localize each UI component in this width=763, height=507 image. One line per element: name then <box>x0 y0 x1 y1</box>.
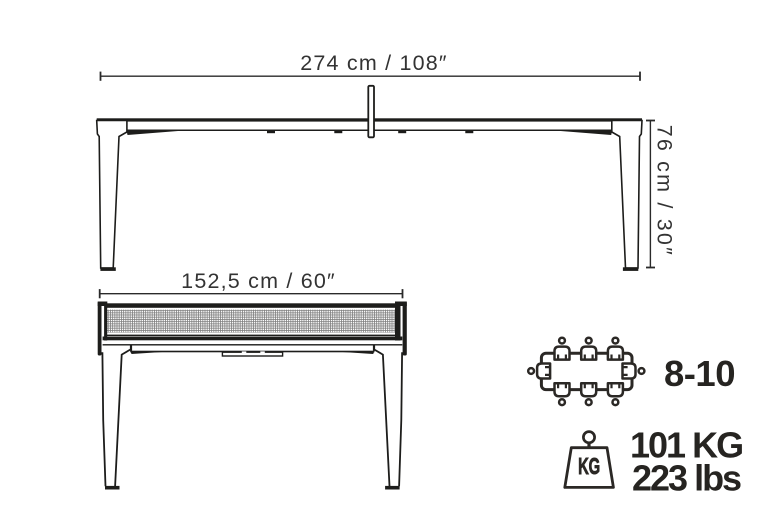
svg-text:223 lbs: 223 lbs <box>632 457 741 498</box>
svg-text:KG: KG <box>578 454 600 480</box>
svg-text:152,5 cm / 60″: 152,5 cm / 60″ <box>181 269 336 293</box>
svg-text:274 cm / 108″: 274 cm / 108″ <box>300 51 448 75</box>
svg-text:8-10: 8-10 <box>664 353 735 394</box>
svg-text:76 cm / 30″: 76 cm / 30″ <box>653 125 677 257</box>
